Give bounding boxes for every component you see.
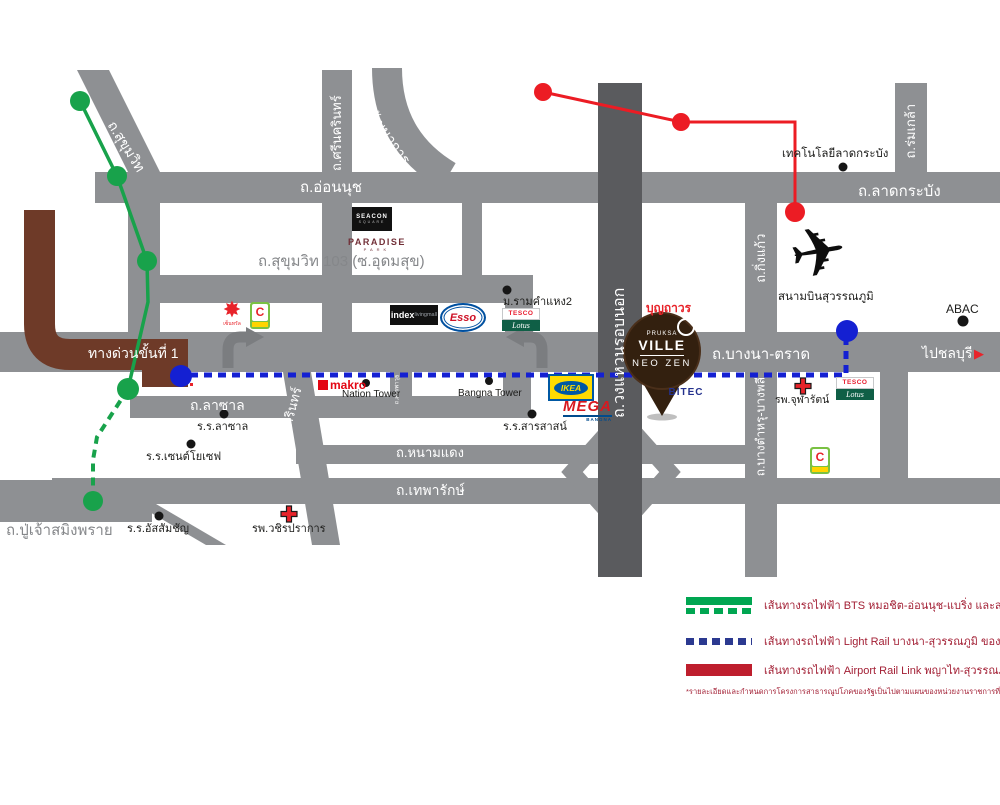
sarasas-school-dot <box>528 410 537 419</box>
seacon-logo: SEACON SQUARE <box>352 207 392 231</box>
airport-link-dot-1 <box>534 83 552 101</box>
legend-label-light-rail: เส้นทางรถไฟฟ้า Light Rail บางนา-สุวรรณภู… <box>764 632 1000 650</box>
road-label-king-kaeo: ถ.กิ่งแก้ว <box>754 213 768 303</box>
suvarnabhumi-label: สนามบินสุวรรณภูมิ <box>778 291 874 304</box>
bigc-logo-south: C <box>810 447 830 474</box>
bigc-band <box>252 322 268 327</box>
light-rail-legend-swatch <box>686 638 752 645</box>
road-label-latkrabang: ถ.ลาดกระบัง <box>858 184 941 201</box>
chonburi-arrow-icon: ▶ <box>974 347 984 361</box>
legend-item-airport-link: เส้นทางรถไฟฟ้า Airport Rail Link พญาไท-ส… <box>686 661 1000 679</box>
paradise-park-logo: PARADISE PARK <box>348 237 406 252</box>
central-logo: ✸ เซ็นทรัล <box>216 300 248 328</box>
bigc-logo-north: C <box>250 302 270 329</box>
paradise-text: PARADISE <box>348 237 406 247</box>
index-text: index <box>391 310 415 320</box>
light-rail-dashed-swatch <box>686 638 752 645</box>
bts-legend-swatch <box>686 597 752 614</box>
road-puchao <box>0 480 152 522</box>
legend-item-light-rail: เส้นทางรถไฟฟ้า Light Rail บางนา-สุวรรณภู… <box>686 632 1000 650</box>
tech-ladkrabang-dot <box>839 163 848 172</box>
ramkhamhaeng2-label: ม.รามคำแหง2 <box>503 296 572 308</box>
tesco-text: TESCO <box>502 308 540 320</box>
road-label-rom-klao: ถ.ร่มเกล้า <box>904 76 918 186</box>
road-namdaeng <box>296 445 776 464</box>
airport-link-legend-swatch <box>686 664 752 676</box>
paradise-subtext: PARK <box>348 247 406 252</box>
road-label-sukhumvit103: ถ.สุขุมวิท 103 (ซ.อุดมสุข) <box>258 254 425 271</box>
seacon-subtext: SQUARE <box>352 220 392 224</box>
road-label-thepharak: ถ.เทพารักษ์ <box>396 483 465 498</box>
index-subtext: livingmall <box>414 312 437 318</box>
abac-label: ABAC <box>946 303 979 316</box>
assumption-school-label: ร.ร.อัสสัมชัญ <box>127 523 189 535</box>
pin-divider <box>640 355 684 356</box>
central-logo-text: เซ็นทรัล <box>216 320 248 328</box>
light-rail-terminal-airport <box>836 320 858 342</box>
bts-solid-swatch <box>686 597 752 605</box>
mega-subtext: BANGNA <box>563 417 612 422</box>
boonthavorn-logo: บุญถาวร <box>646 299 691 318</box>
mega-text: MEGA <box>563 398 612 417</box>
map-graphics <box>0 0 1000 805</box>
index-livingmall-logo: indexlivingmall <box>390 305 438 325</box>
esso-logo: Esso <box>440 303 486 332</box>
road-soi-onnut <box>462 203 482 275</box>
tesco-lotus-logo-north: TESCO Lotus <box>502 308 540 331</box>
road-label-expressway: ทางด่วนขั้นที่ 1 <box>88 346 179 361</box>
bts-station-dot-1 <box>70 91 90 111</box>
pin-brand-bottom: NEO ZEN <box>624 358 700 369</box>
road-label-lasalle: ถ.ลาซาล <box>190 398 245 413</box>
mega-bangna-logo: MEGA BANGNA <box>563 398 612 422</box>
bts-station-dot-3 <box>137 251 157 271</box>
st-joseph-school-label: ร.ร.เซนต์โยเซฟ <box>146 451 221 463</box>
bts-station-dot-4 <box>117 378 139 400</box>
st-joseph-school-dot <box>187 440 196 449</box>
central-star-icon: ✸ <box>216 300 248 320</box>
bts-dashed-swatch <box>686 608 752 614</box>
bigc-letter-2: C <box>812 449 828 466</box>
road-label-bang-tamru: ถ.บางตำหรุ-บางพลี <box>754 352 767 502</box>
airport-link-solid-swatch <box>686 664 752 676</box>
vajira-hospital-label: รพ.วชิรปราการ <box>252 523 326 535</box>
legend-label-airport-link: เส้นทางรถไฟฟ้า Airport Rail Link พญาไท-ส… <box>764 661 1000 679</box>
airport-link-dot-2 <box>672 113 690 131</box>
road-label-to-chonburi: ไปชลบุรี <box>922 346 972 361</box>
assumption-school-dot <box>155 512 164 521</box>
vajira-hospital-cross-icon <box>281 506 297 522</box>
light-rail-terminal-bitec <box>170 365 192 387</box>
location-map: ถ.อ่อนนุช ถ.ลาดกระบัง ถ.สุขุมวิท 103 (ซ.… <box>0 0 1000 805</box>
road-label-puchao: ถ.ปู่เจ้าสมิงพราย <box>6 523 113 540</box>
bitec-logo: BITEC <box>186 387 1000 398</box>
ramkhamhaeng2-dot <box>503 286 512 295</box>
bigc-letter: C <box>252 304 268 321</box>
airplane-icon: ✈ <box>785 216 853 293</box>
road-thepharak <box>52 478 1000 504</box>
bangna-tower-dot <box>485 377 493 385</box>
abac-dot <box>958 316 969 327</box>
road-label-namdaeng: ถ.หนามแดง <box>396 446 464 460</box>
lasalle-school-label: ร.ร.ลาซาล <box>197 421 248 433</box>
bts-station-dot-5 <box>83 491 103 511</box>
pin-brand-mid: VILLE <box>624 337 700 353</box>
bigc-band-2 <box>812 467 828 472</box>
lotus-text: Lotus <box>502 320 540 331</box>
road-label-srinakarin-north: ถ.ศรีนครินทร์ <box>330 73 344 193</box>
bts-station-dot-2 <box>107 166 127 186</box>
tech-ladkrabang-label: เทคโนโลยีลาดกระบัง <box>782 148 888 161</box>
pin-ring-dot <box>689 319 694 324</box>
project-pin-label: PRUKSA VILLE NEO ZEN <box>624 331 700 369</box>
legend-item-bts: เส้นทางรถไฟฟ้า BTS หมอชิต-อ่อนนุช-แบริ่ง… <box>686 596 1000 614</box>
esso-text: Esso <box>450 312 476 324</box>
legend-label-bts: เส้นทางรถไฟฟ้า BTS หมอชิต-อ่อนนุช-แบริ่ง… <box>764 596 1000 614</box>
legend-footnote: *รายละเอียดและกำหนดการโครงการสาธารณูปโภค… <box>686 686 1000 698</box>
sarasas-school-label: ร.ร.สารสาสน์ <box>503 421 567 433</box>
